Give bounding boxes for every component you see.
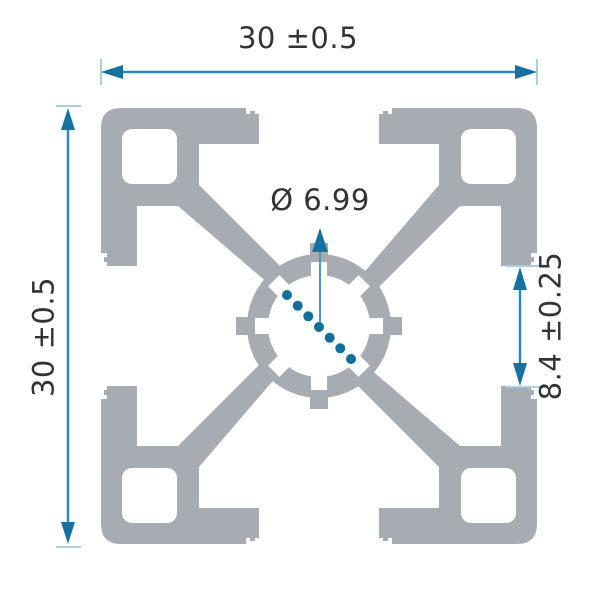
corner-unit-top-left <box>101 108 290 290</box>
arrowhead-up-icon <box>61 108 75 130</box>
technical-drawing: 30 ±0.5 30 ±0.5 Ø 6.99 8.4 ±0.25 <box>0 0 600 600</box>
arrowhead-right-icon <box>515 65 537 79</box>
arrowhead-left-icon <box>101 65 123 79</box>
corner-bore-hole <box>122 468 177 523</box>
width-dimension <box>101 59 537 85</box>
width-dimension-label: 30 ±0.5 <box>238 24 358 53</box>
bore-diameter-label: Ø 6.99 <box>270 186 370 215</box>
arrowhead-up-icon <box>513 267 527 290</box>
arrowhead-down-icon <box>513 363 527 386</box>
arrowhead-up-icon <box>312 228 328 252</box>
corner-bore-hole <box>461 129 516 184</box>
corner-unit-bottom-left <box>101 355 283 544</box>
corner-unit-top-right <box>355 108 537 297</box>
corner-bore-hole <box>122 129 177 184</box>
profile-cross-section-svg <box>0 0 600 600</box>
slot-opening-label: 8.4 ±0.25 <box>537 252 566 401</box>
corner-unit-bottom-right <box>348 362 537 544</box>
height-dimension-label: 30 ±0.5 <box>30 277 59 397</box>
arrowhead-down-icon <box>61 522 75 544</box>
corner-bore-hole <box>461 468 516 523</box>
